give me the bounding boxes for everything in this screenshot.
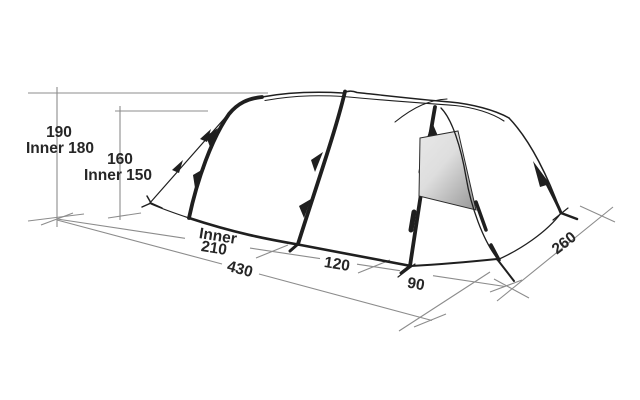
dimension-guides — [28, 87, 615, 331]
door-edge-clip-2 — [491, 245, 499, 260]
label-door-section-length: 90 — [406, 275, 426, 295]
door-window — [419, 131, 476, 210]
base-dimension-line — [57, 219, 505, 287]
rear-edge-lower — [547, 184, 561, 213]
door-edge-clip-1 — [476, 202, 486, 230]
label-front-height: 160 — [107, 151, 133, 168]
porch-guy-line — [149, 111, 231, 204]
label-width: 260 — [549, 229, 580, 258]
total-length-end-tick — [414, 314, 446, 327]
base-rear-edge — [497, 213, 561, 260]
tent-dimension-diagram: 190 Inner 180 160 Inner 150 Inner 210 12… — [0, 0, 640, 400]
middle-pole — [298, 92, 345, 245]
front-corner-stake — [497, 259, 514, 281]
guy-anchor-stake — [142, 196, 162, 208]
ground-tick-right — [108, 213, 141, 218]
label-front-height-inner: Inner 150 — [84, 167, 152, 184]
ridge-line — [262, 91, 509, 118]
rear-corner-stake — [561, 213, 577, 219]
label-inner-length-value: 210 — [200, 238, 228, 259]
label-peak-height-inner: Inner 180 — [26, 140, 94, 157]
base-door-edge — [411, 259, 497, 266]
ridge-sleeve-line — [265, 96, 504, 121]
base-dimension-tick-2 — [256, 245, 288, 258]
diagram-canvas: 190 Inner 180 160 Inner 150 Inner 210 12… — [0, 0, 640, 400]
label-mid-section-length: 120 — [323, 254, 351, 275]
label-total-length: 430 — [225, 258, 254, 281]
label-peak-height: 190 — [46, 124, 72, 141]
door-pole-clip-2 — [411, 212, 414, 230]
front-pole — [189, 97, 262, 218]
